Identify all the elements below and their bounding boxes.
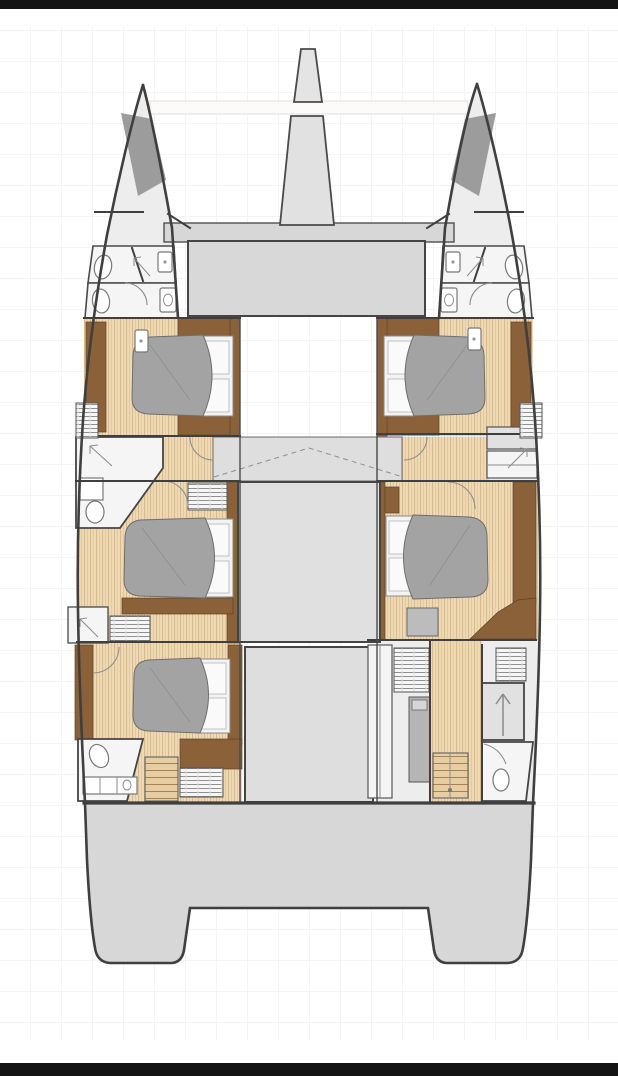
sink-console — [160, 288, 176, 312]
wardrobe-trim — [383, 487, 399, 513]
bed-foot-trim — [384, 415, 439, 435]
port-forward-cabin — [84, 318, 240, 436]
wardrobe — [188, 483, 227, 510]
hatch-dot — [163, 260, 166, 263]
wardrobe — [496, 648, 526, 681]
wardrobe — [180, 768, 223, 797]
staircase — [145, 757, 178, 801]
double-bed-duvet — [404, 515, 489, 599]
saloon-mid-module — [238, 482, 380, 642]
top-letterbox-bar — [0, 0, 618, 9]
ensuite-bathroom — [482, 742, 533, 801]
hatch-dot — [472, 337, 475, 340]
vanity-counter — [83, 777, 137, 794]
double-bed-duvet — [124, 518, 215, 598]
hull-side-locker — [520, 403, 542, 438]
saloon-aft-module — [245, 647, 373, 802]
bed-head-trim — [384, 318, 439, 338]
coachroof — [188, 241, 425, 316]
port-aft-cabin — [75, 645, 242, 802]
bed-foot-trim — [178, 415, 233, 435]
hatch-dot — [451, 260, 454, 263]
bed-foot-trim — [180, 739, 242, 769]
bed-head-trim — [178, 318, 233, 338]
forward-crossbeam — [150, 101, 468, 114]
hull-side-trim — [513, 482, 536, 603]
hull-side-locker — [76, 403, 98, 438]
wardrobe — [394, 648, 429, 692]
toilet-icon — [493, 769, 509, 791]
bridgedeck-passage — [213, 437, 402, 481]
starboard-mid-cabin — [377, 482, 538, 640]
starboard-forward-cabin — [377, 318, 533, 436]
wardrobe — [110, 616, 150, 641]
sink-console — [441, 288, 457, 312]
hatch-dot — [139, 339, 142, 342]
toilet-icon — [86, 501, 104, 523]
hull-side-trim — [75, 645, 93, 740]
shower-stall — [68, 607, 108, 643]
screenshot-frame — [0, 0, 618, 1076]
bed-foot-trim — [122, 598, 233, 614]
nightstand — [407, 608, 438, 636]
bottom-letterbox-bar — [0, 1063, 618, 1076]
catamaran-floor-plan — [0, 0, 618, 1076]
stair-post — [448, 788, 452, 792]
fridge-handle — [412, 700, 427, 710]
